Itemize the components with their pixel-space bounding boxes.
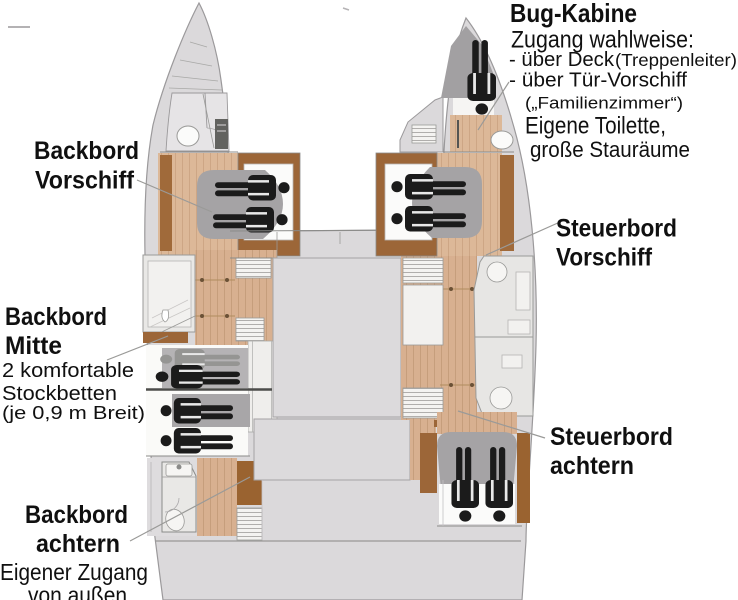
svg-text:(Treppenleiter): (Treppenleiter) [615, 50, 737, 70]
svg-text:Backbord: Backbord [34, 137, 139, 165]
svg-text:achtern: achtern [550, 452, 634, 480]
svg-text:- über Deck: - über Deck [509, 49, 615, 71]
svg-text:Bug-Kabine: Bug-Kabine [510, 0, 637, 28]
svg-text:Vorschiff: Vorschiff [35, 166, 135, 194]
svg-text:Eigene Toilette,: Eigene Toilette, [525, 113, 666, 140]
svg-text:Steuerbord: Steuerbord [550, 423, 673, 451]
svg-text:Vorschiff: Vorschiff [556, 244, 653, 272]
svg-text:Steuerbord: Steuerbord [556, 214, 677, 242]
svg-text:- über Tür-Vorschiff: - über Tür-Vorschiff [509, 70, 687, 92]
svg-text:Stockbetten: Stockbetten [2, 383, 117, 405]
svg-text:achtern: achtern [36, 530, 120, 558]
svg-text:2 komfortable: 2 komfortable [2, 360, 134, 382]
svg-text:von außen: von außen [28, 582, 127, 600]
svg-text:(je 0,9 m Breit): (je 0,9 m Breit) [2, 403, 145, 423]
svg-text:(„Familienzimmer“): („Familienzimmer“) [525, 93, 683, 112]
svg-text:große Stauräume: große Stauräume [530, 137, 690, 162]
svg-text:Mitte: Mitte [5, 332, 62, 360]
svg-text:Backbord: Backbord [25, 501, 128, 529]
svg-text:Backbord: Backbord [5, 303, 107, 331]
